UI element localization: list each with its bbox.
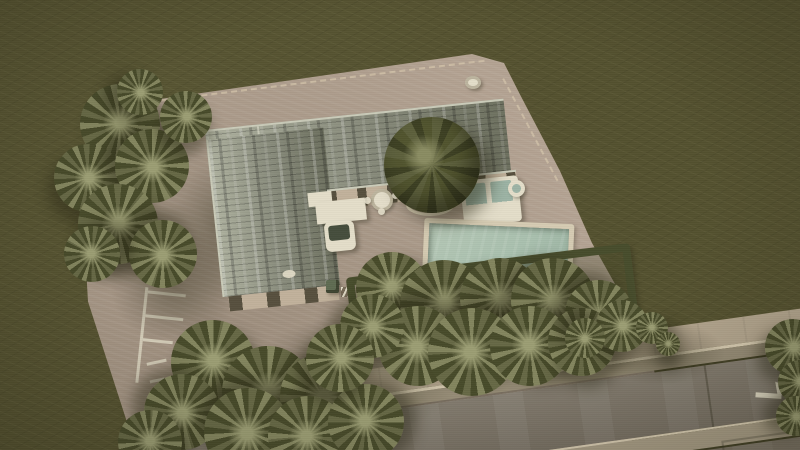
side-table[interactable] [508,180,525,197]
patio-chair [364,197,371,204]
trash-bin[interactable] [326,280,339,293]
hot-tub[interactable] [324,220,357,253]
hot-tub-water [328,224,350,241]
large-tree[interactable] [384,117,480,213]
side-table-top [512,184,521,193]
parking-line [147,359,167,366]
corner-fountain[interactable] [465,76,481,89]
game-viewport[interactable] [0,0,800,450]
patio-chair [378,208,385,215]
palm-tree[interactable] [306,324,374,392]
